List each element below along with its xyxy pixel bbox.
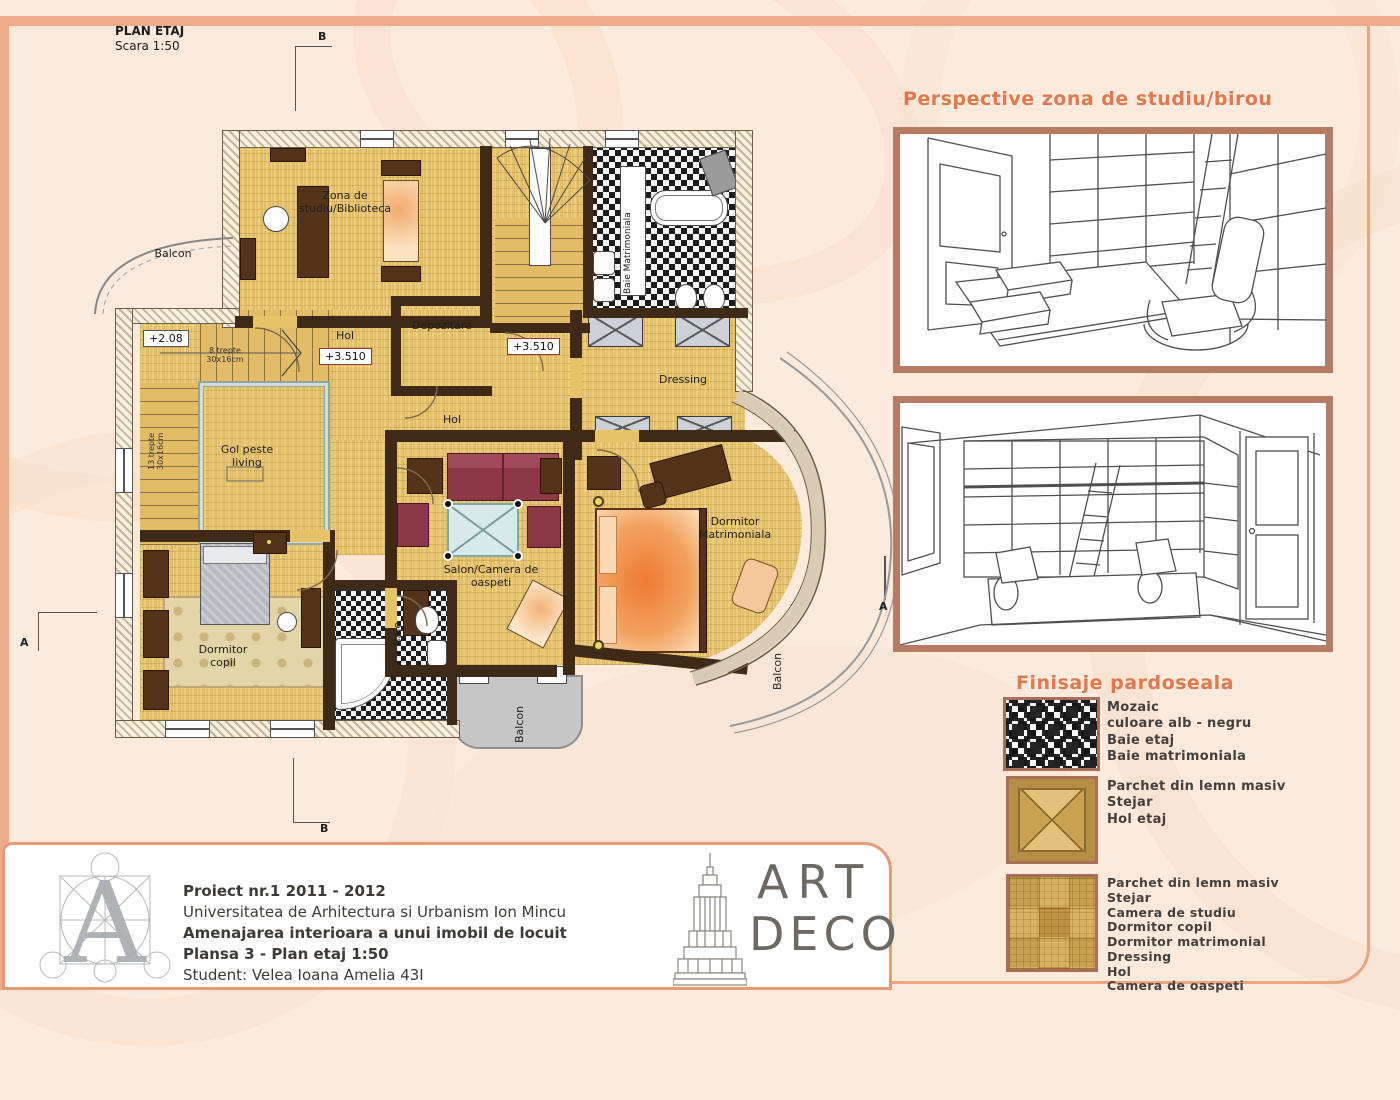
window: [115, 448, 133, 493]
finish-line: Parchet din lemn masiv: [1107, 876, 1279, 891]
wall: [385, 665, 557, 677]
finish-text-mosaic: Mozaic culoare alb - negru Baie etaj Bai…: [1107, 700, 1252, 766]
shelf: [381, 160, 421, 176]
finish-line: Mozaic: [1107, 700, 1252, 716]
wall: [583, 146, 593, 316]
brand-art: ART: [757, 859, 872, 905]
lamp: [593, 496, 604, 507]
floor-plan: Baie Matrimoniala: [85, 118, 897, 778]
room-label-study: Zona de studiu/Biblioteca: [275, 190, 415, 216]
window: [360, 130, 394, 148]
cabinet: [240, 238, 256, 280]
wardrobe: [675, 313, 730, 347]
section-mark-b-top: B: [318, 30, 326, 43]
label-balcony-bottom: Balcon: [513, 683, 526, 743]
table-leg: [443, 551, 453, 561]
wall: [115, 308, 133, 738]
side-table: [407, 458, 443, 494]
room-label-salon: Salon/Camera de oaspeti: [437, 564, 545, 590]
table-leg: [443, 499, 453, 509]
room-label-hol2: Hol: [430, 414, 474, 427]
wall: [323, 530, 335, 730]
lamp: [593, 640, 604, 651]
window: [505, 130, 539, 148]
nightstand: [587, 456, 621, 490]
plan-scale: Scara 1:50: [115, 39, 180, 53]
perspective-frame-2: [893, 396, 1333, 652]
finish-line: Stejar: [1107, 795, 1286, 811]
sink: [593, 278, 615, 302]
bidet: [703, 284, 725, 311]
window: [605, 130, 639, 148]
spiral-stair-core: [529, 148, 551, 266]
room-label-depozitare: Depozitare: [397, 320, 487, 333]
window: [270, 720, 315, 738]
side-table: [540, 458, 562, 494]
dresser: [143, 670, 169, 710]
stair-note-13: 13 trepte 30x16cm: [147, 398, 165, 470]
svg-text:A: A: [64, 859, 147, 989]
pillow: [599, 516, 617, 574]
shelf: [381, 266, 421, 282]
dresser: [143, 610, 169, 658]
finish-line: Dressing: [1107, 950, 1279, 965]
toilet: [415, 606, 439, 634]
finish-line: Hol: [1107, 965, 1279, 980]
perspective-frame-1: [893, 127, 1333, 373]
section-mark-a-right: A: [879, 600, 888, 613]
title-block: A Proiect nr.1 2011 - 2012 Universitatea…: [2, 842, 892, 990]
window: [115, 573, 133, 618]
window: [165, 720, 210, 738]
finish-line: Dormitor copil: [1107, 920, 1279, 935]
finish-line: Baie matrimoniala: [1107, 749, 1252, 765]
plan-title: PLAN ETAJ: [115, 24, 184, 38]
wall: [391, 296, 401, 396]
perspectives-heading: Perspective zona de studiu/birou: [903, 88, 1272, 110]
level-marker: +3.510: [319, 348, 372, 365]
armchair: [397, 503, 429, 547]
level-marker: +3.510: [507, 338, 560, 355]
wall: [490, 323, 590, 333]
wall: [447, 580, 457, 725]
project-title: Amenajarea interioara a unui imobil de l…: [183, 923, 567, 944]
door-opening: [290, 530, 330, 542]
table-leg: [513, 551, 523, 561]
chair: [277, 612, 297, 632]
wall: [563, 430, 575, 675]
finish-swatch-mosaic: [1003, 697, 1100, 771]
university-name: Universitatea de Arhitectura si Urbanism…: [183, 902, 567, 923]
sheet-info: Plansa 3 - Plan etaj 1:50: [183, 944, 567, 965]
pillow: [599, 586, 617, 644]
finish-text-parquet-basket: Parchet din lemn masiv Stejar Camera de …: [1107, 876, 1279, 994]
sink: [427, 640, 447, 666]
level-marker: +2.08: [143, 330, 189, 347]
section-mark-b-bottom: B: [320, 822, 328, 835]
toilet: [675, 284, 697, 311]
room-label-bath: Baie: [391, 606, 404, 646]
finish-line: Baie etaj: [1107, 733, 1252, 749]
door-opening: [570, 358, 582, 398]
door-opening: [595, 430, 639, 442]
finish-line: Dormitor matrimonial: [1107, 935, 1279, 950]
empire-state-building-icon: [673, 853, 747, 987]
finish-line: Hol etaj: [1107, 812, 1286, 828]
finish-text-parquet-star: Parchet din lemn masiv Stejar Hol etaj: [1107, 779, 1286, 828]
room-label-master-bedroom: Dormitor Matrimoniala: [683, 516, 787, 542]
wall: [391, 296, 492, 306]
finishes-heading: Finisaje pardoseala: [1016, 672, 1234, 694]
room-label-master-bath: Baie Matrimoniala: [623, 170, 633, 294]
label-balcony-right: Balcon: [771, 630, 784, 690]
finish-line: Camera de oaspeti: [1107, 979, 1279, 994]
stair-note-8: 8 trepte 30x16cm: [197, 346, 253, 365]
label-balcony-left: Balcon: [143, 248, 203, 261]
section-mark-a-left: A: [20, 636, 29, 649]
table-leg: [513, 499, 523, 509]
shelf: [270, 148, 306, 162]
sink: [593, 251, 615, 275]
wall: [735, 130, 753, 392]
presentation-board: { "plan": { "title": "PLAN ETAJ", "scale…: [0, 0, 1400, 990]
room-label-child-bedroom: Dormitor copil: [185, 644, 261, 670]
brand-deco: DECO: [749, 911, 902, 957]
section-line-b-top: [295, 46, 332, 111]
armchair: [527, 506, 561, 548]
perspective-drawing-study: [900, 134, 1326, 366]
wall: [583, 308, 748, 318]
perspective-drawing-library: [900, 403, 1326, 645]
student-name: Student: Velea Ioana Amelia 43I: [183, 965, 567, 986]
finish-line: culoare alb - negru: [1107, 716, 1252, 732]
finish-line: Parchet din lemn masiv: [1107, 779, 1286, 795]
finish-line: Stejar: [1107, 891, 1279, 906]
door-opening: [253, 316, 297, 328]
glass-table: [447, 503, 519, 557]
project-number: Proiect nr.1 2011 - 2012: [183, 881, 567, 902]
knob: [265, 538, 273, 546]
finish-swatch-parquet-basket: [1006, 874, 1098, 972]
sheet-border-top: [0, 16, 1400, 26]
wall: [391, 386, 492, 396]
wall: [115, 308, 240, 324]
dresser: [143, 550, 169, 598]
finish-line: Camera de studiu: [1107, 906, 1279, 921]
desk: [301, 588, 321, 648]
label-void: Gol peste living: [207, 444, 287, 470]
wall: [222, 130, 240, 328]
letter-a-construction-logo: A: [33, 849, 177, 991]
bathtub: [650, 190, 728, 226]
room-label-hol: Hol: [320, 330, 370, 343]
finish-swatch-parquet-star: [1006, 776, 1098, 864]
room-label-dressing: Dressing: [643, 374, 723, 387]
wardrobe: [588, 313, 643, 347]
